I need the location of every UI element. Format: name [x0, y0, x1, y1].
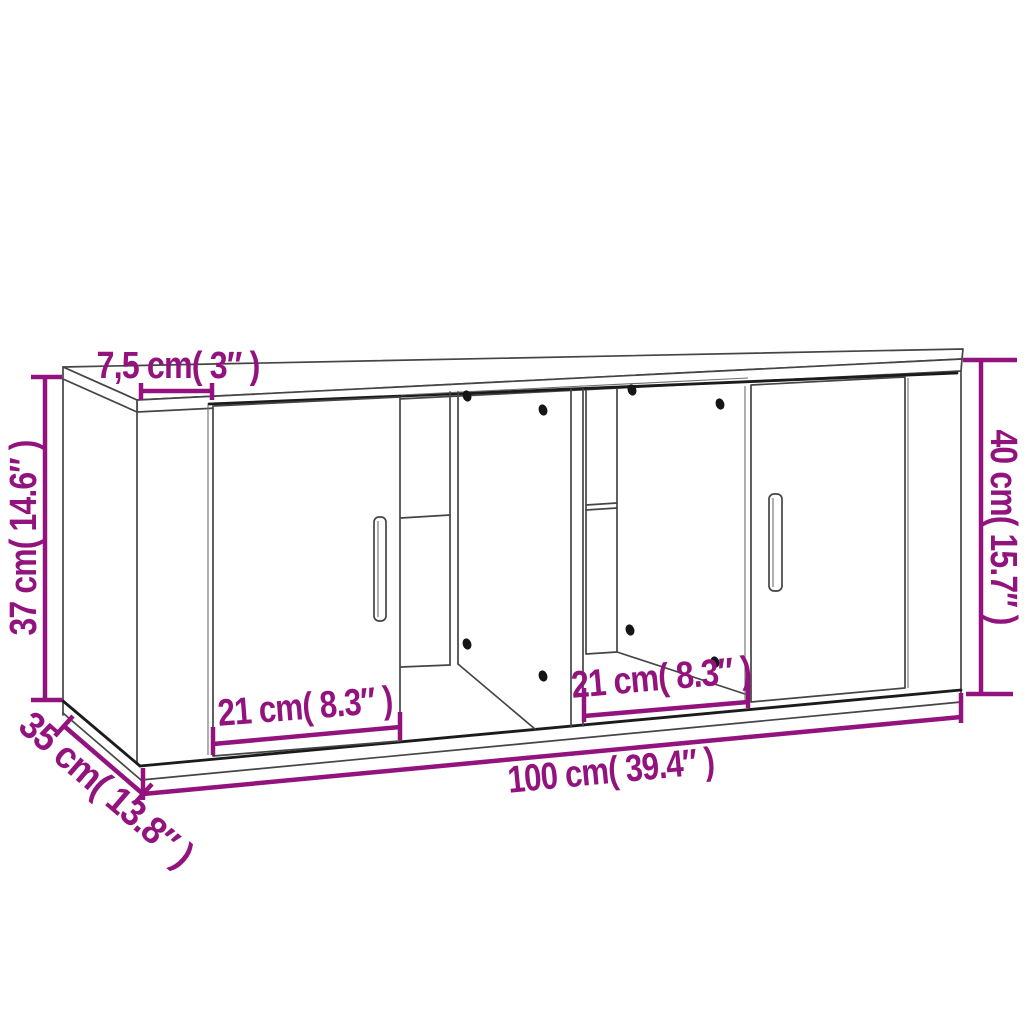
handle-bar — [769, 494, 782, 591]
screw-hole — [461, 637, 473, 650]
dim-right-height-label: 40 cm( 15.7″ ) — [982, 430, 1024, 625]
left-closed-compartment-interior — [401, 392, 535, 729]
inner-floor-edge — [401, 665, 450, 667]
right-door — [745, 377, 908, 703]
dimension-diagram-page: 7,5 cm( 3″ ) 37 cm( 14.6″ ) 40 cm( 15.7″… — [0, 0, 1024, 1024]
screw-hole — [537, 669, 549, 682]
cabinet-line-drawing: 7,5 cm( 3″ ) 37 cm( 14.6″ ) 40 cm( 15.7″… — [0, 0, 1024, 1024]
dim-right-compartment-label: 21 cm( 8.3″ ) — [569, 649, 752, 707]
screw-hole — [624, 623, 636, 636]
right-door-handle — [769, 494, 782, 591]
handle-bar — [374, 517, 386, 621]
screw-hole — [714, 397, 726, 410]
dim-width-label: 100 cm( 39.4″ ) — [506, 740, 716, 801]
open-compartment-left — [461, 389, 549, 682]
niche-shelf-top — [586, 503, 617, 505]
dim-left-height: 37 cm( 14.6″ ) — [3, 377, 62, 700]
dim-right-height: 40 cm( 15.7″ ) — [963, 360, 1024, 694]
dim-top-depth-label: 7,5 cm( 3″ ) — [97, 345, 260, 387]
screw-hole — [537, 403, 549, 416]
left-door-handle — [374, 517, 386, 621]
niche-floor — [586, 652, 617, 654]
dim-left-height-label: 37 cm( 14.6″ ) — [3, 441, 45, 636]
inner-shelf-edge — [401, 515, 450, 518]
divider-a-floor-line — [458, 664, 535, 729]
niche-shelf-bottom — [586, 508, 617, 510]
open-compartment-right — [624, 383, 726, 668]
